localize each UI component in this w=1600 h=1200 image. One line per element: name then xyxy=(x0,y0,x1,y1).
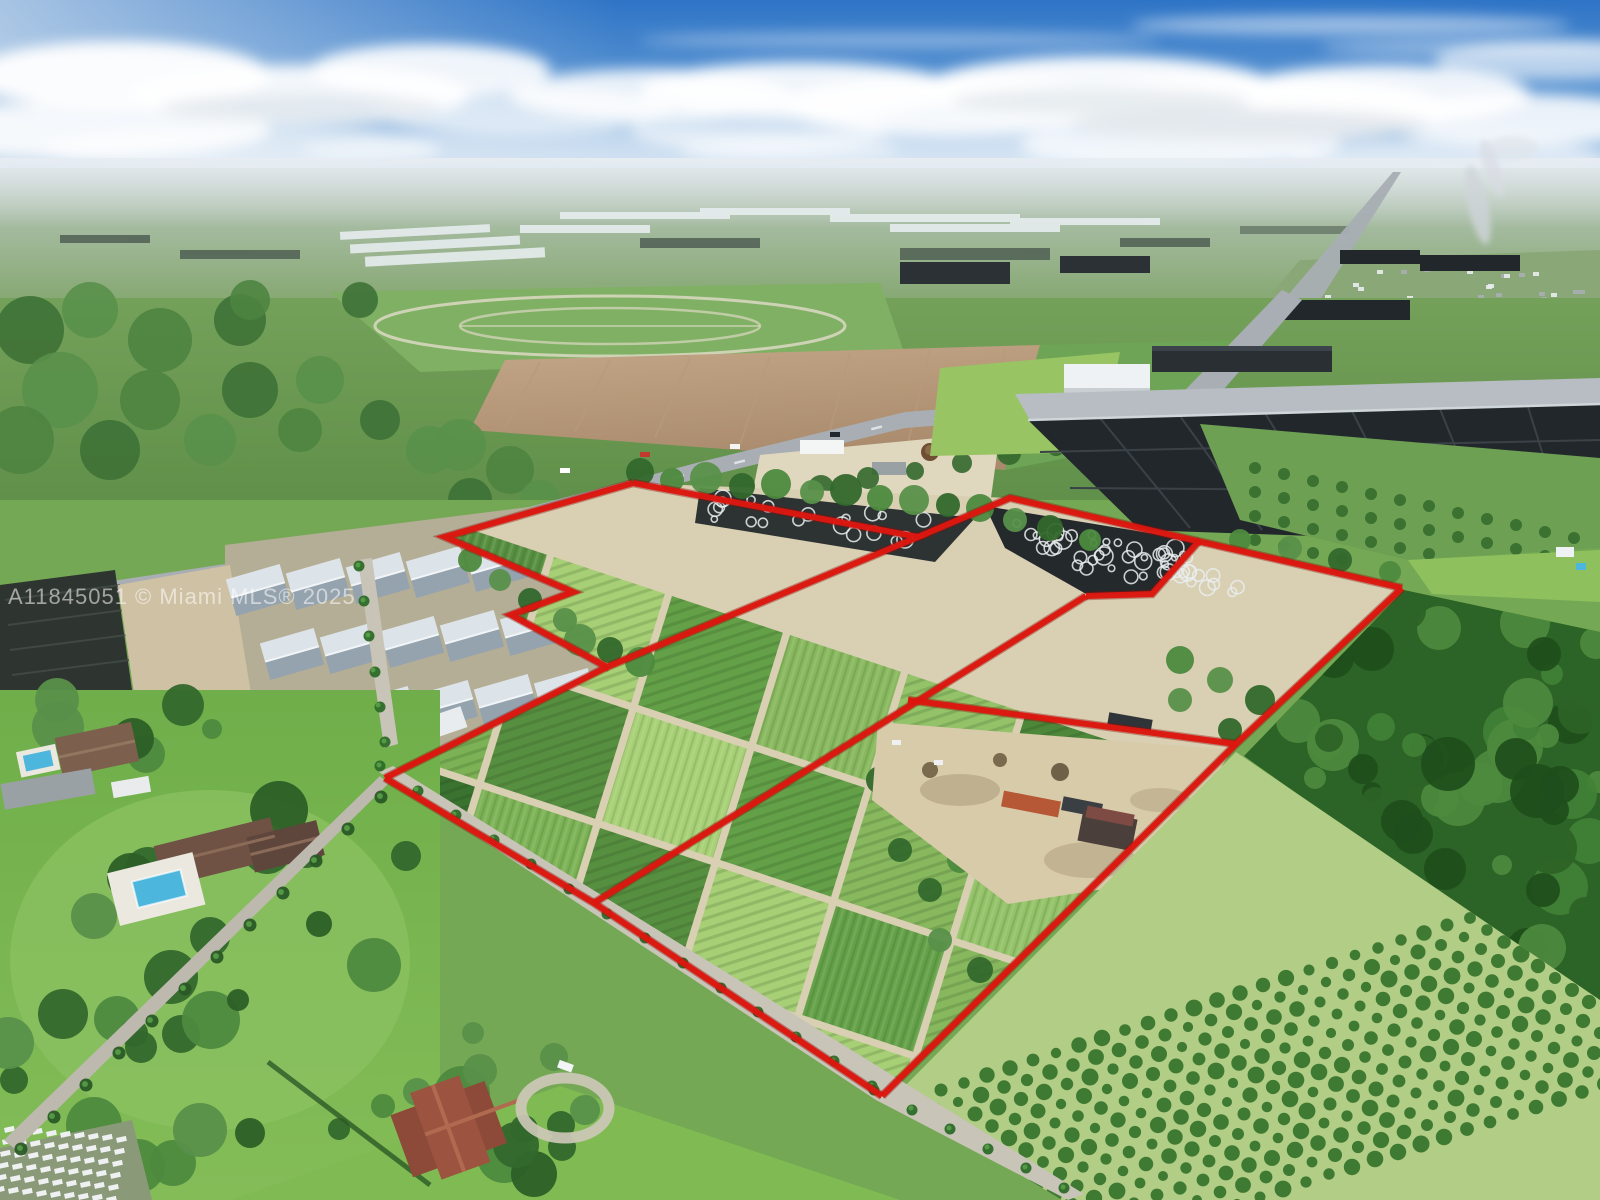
mls-watermark: A11845051 © Miami MLS® 2025 xyxy=(8,584,356,609)
canopy-building xyxy=(800,440,844,454)
aerial-photo-canvas: A11845051 © Miami MLS® 2025 xyxy=(0,0,1600,1200)
aerial-listing-photo: A11845051 © Miami MLS® 2025 xyxy=(0,0,1600,1200)
small-pool xyxy=(1576,563,1586,570)
parked-car xyxy=(892,740,901,745)
parked-car xyxy=(934,760,943,765)
small-white-building xyxy=(1556,547,1574,557)
